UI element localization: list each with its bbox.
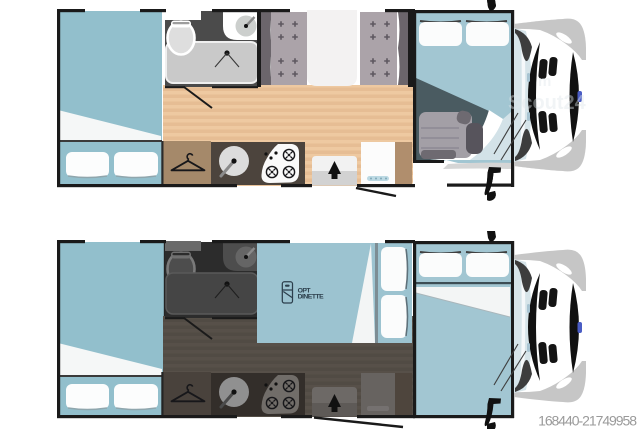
svg-text:Scout24: Scout24 [508,92,587,114]
svg-text:m: m [538,73,551,90]
svg-text:168440-21749958: 168440-21749958 [538,413,637,429]
svg-text:DINETTE: DINETTE [298,294,325,301]
